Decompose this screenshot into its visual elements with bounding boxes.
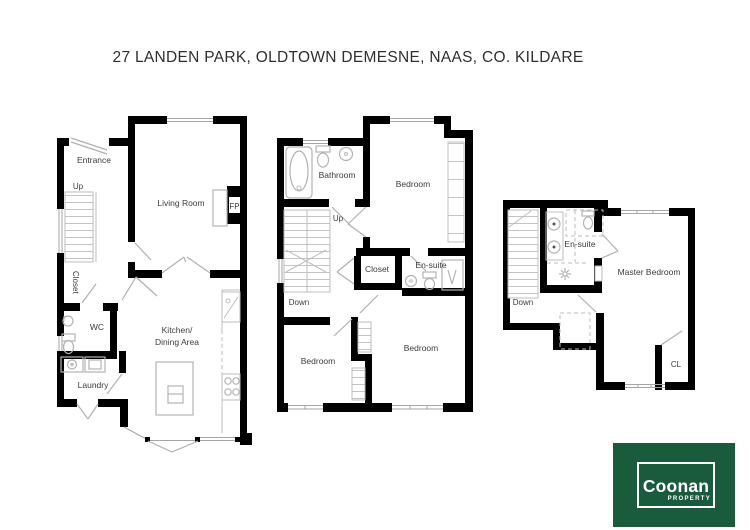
stove: [222, 374, 240, 400]
label-fireplace: FP: [229, 202, 239, 211]
ground-floor-windows: [59, 119, 240, 443]
label-wc: WC: [90, 322, 104, 332]
ground-floor-stairs: [65, 192, 96, 262]
ensuite-wall-niche: [595, 266, 602, 281]
second-floor-plan: En-suite Master Bedroom Down CL: [503, 200, 695, 390]
floorplan-page: 27 LANDEN PARK, OLDTOWN DEMESNE, NAAS, C…: [0, 0, 750, 530]
label-up-ground: Up: [73, 182, 84, 191]
label-kitchen-2: Dining Area: [155, 337, 199, 347]
label-bedroom-top: Bedroom: [396, 179, 431, 189]
wc-toilet: [62, 334, 75, 354]
page-title: 27 LANDEN PARK, OLDTOWN DEMESNE, NAAS, C…: [113, 49, 584, 66]
bathroom-sink: [340, 148, 353, 161]
label-ensuite-first: En-suite: [415, 260, 446, 270]
label-living-room: Living Room: [157, 198, 204, 208]
ground-floor-walls: [57, 116, 252, 445]
first-floor-plan: Bathroom Bedroom Up Down Closet En-suite…: [277, 116, 473, 412]
ensuite-sink: [406, 276, 417, 287]
bedroom-wardrobe-right-wall: [448, 142, 464, 242]
ensuite-vanity-sinks: [546, 212, 563, 260]
label-cl: CL: [671, 360, 682, 369]
wc-sink: [63, 316, 73, 326]
second-floor-stairs: [508, 210, 538, 298]
label-bedroom-right: Bedroom: [404, 343, 439, 353]
label-bathroom: Bathroom: [319, 170, 356, 180]
bathroom-toilet: [316, 146, 330, 167]
label-kitchen-1: Kitchen/: [162, 325, 193, 335]
label-laundry: Laundry: [78, 380, 109, 390]
logo-tagline-text: PROPERTY: [668, 496, 711, 502]
kitchen-island: [156, 362, 193, 415]
label-closet-ground: Closet: [71, 271, 80, 294]
label-up-first: Up: [333, 214, 344, 223]
skylight-icon: [559, 268, 571, 280]
washer: [61, 357, 83, 372]
label-bedroom-left: Bedroom: [301, 356, 336, 366]
kitchen-counter: [222, 290, 240, 433]
laundry-sink: [85, 357, 105, 372]
first-floor-stairs: [284, 210, 330, 292]
ensuite-toilet: [423, 272, 436, 290]
bathtub: [286, 147, 312, 198]
ground-floor-plan: Entrance Up Living Room FP Closet WC Lau…: [57, 116, 252, 452]
agency-logo: Coonan PROPERTY: [613, 443, 735, 527]
label-down-first: Down: [289, 298, 309, 307]
ground-floor-doors: [71, 138, 210, 452]
label-ensuite-second: En-suite: [564, 239, 595, 249]
floorplan-canvas: 27 LANDEN PARK, OLDTOWN DEMESNE, NAAS, C…: [0, 0, 750, 530]
logo-brand-text: Coonan: [643, 476, 709, 496]
label-entrance: Entrance: [77, 155, 111, 165]
label-master-bedroom: Master Bedroom: [618, 267, 681, 277]
label-closet-first: Closet: [365, 264, 390, 274]
label-down-second: Down: [513, 298, 533, 307]
